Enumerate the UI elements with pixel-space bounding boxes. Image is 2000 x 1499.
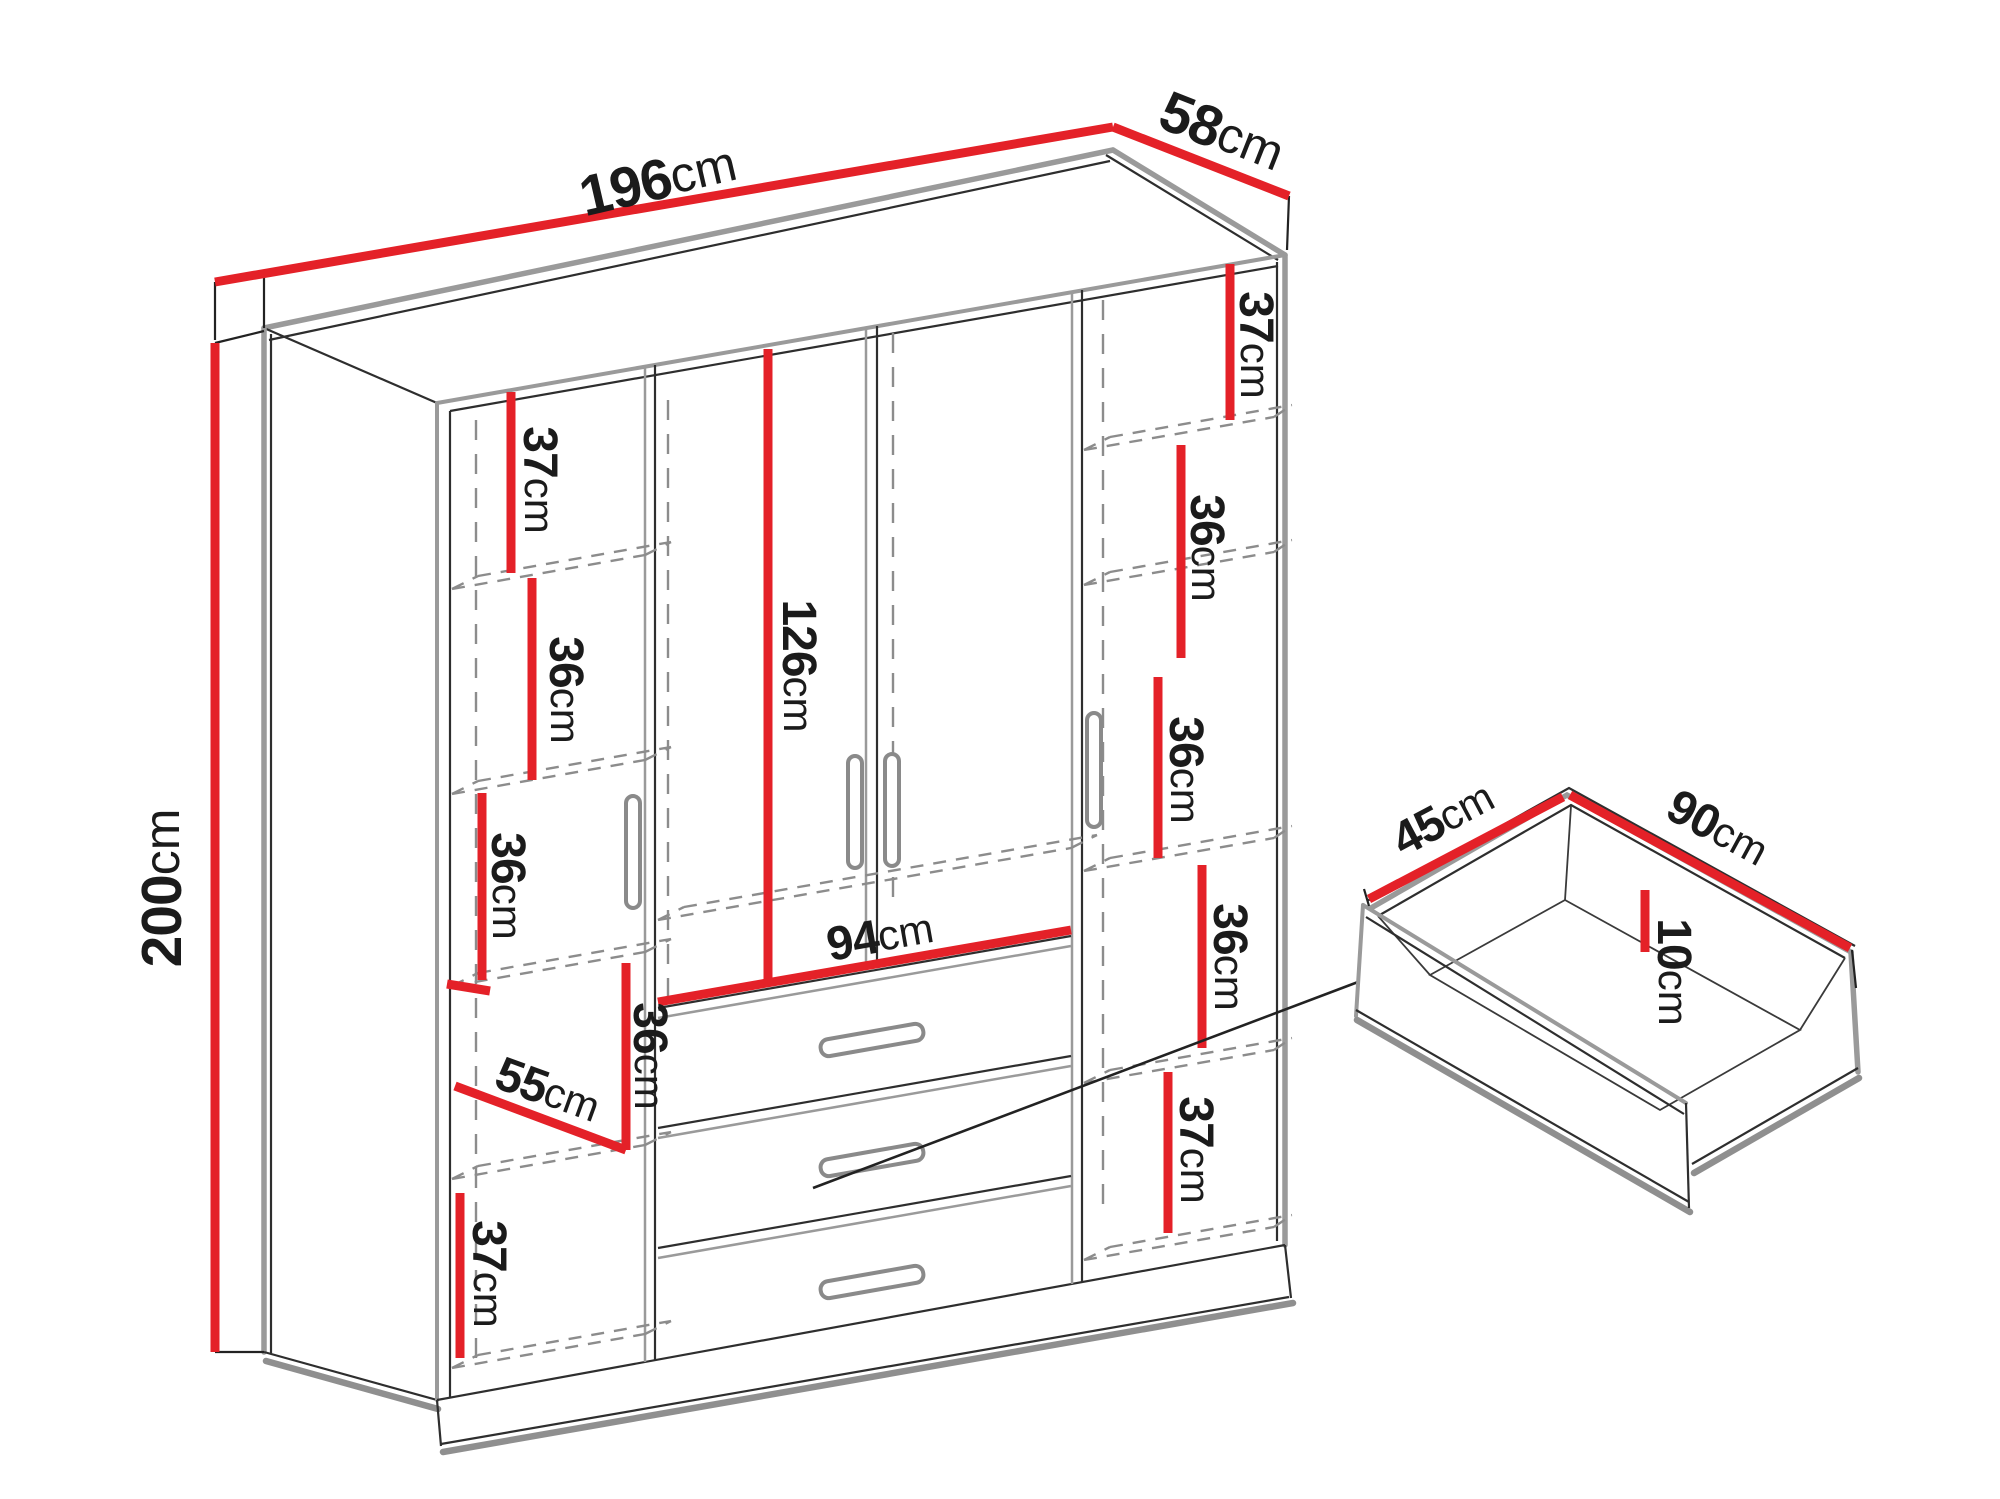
right-bay5-label: 37cm	[1170, 1096, 1223, 1203]
wardrobe-dimension-diagram: 196cm 58cm 200cm 37cm 36cm 36cm 36cm 55c…	[0, 0, 2000, 1499]
right-bay4-label: 36cm	[1204, 903, 1257, 1010]
width-dimension-label: 196cm	[573, 131, 742, 229]
left-bay4-label: 36cm	[624, 1002, 677, 1109]
left-bay1-label: 37cm	[514, 426, 567, 533]
door-handle	[885, 754, 899, 866]
right-bay2-label: 36cm	[1181, 494, 1234, 601]
right-bay1-label: 37cm	[1230, 291, 1283, 398]
left-bay3-label: 36cm	[482, 832, 535, 939]
right-bay3-label: 36cm	[1160, 716, 1213, 823]
left-bay2-label: 36cm	[540, 636, 593, 743]
door-handle	[626, 796, 640, 908]
drawer-height-label: 10cm	[1648, 918, 1701, 1025]
door-handle	[1087, 713, 1101, 827]
height-dimension-label: 200cm	[130, 809, 194, 968]
left-bay5-label: 37cm	[463, 1220, 516, 1327]
wardrobe-body	[264, 150, 1293, 1452]
door-height-label: 126cm	[773, 599, 826, 732]
diagram-page: 196cm 58cm 200cm 37cm 36cm 36cm 36cm 55c…	[0, 0, 2000, 1499]
door-handle	[848, 756, 862, 868]
drawer-detail: 45cm 90cm 10cm	[1356, 769, 1859, 1212]
